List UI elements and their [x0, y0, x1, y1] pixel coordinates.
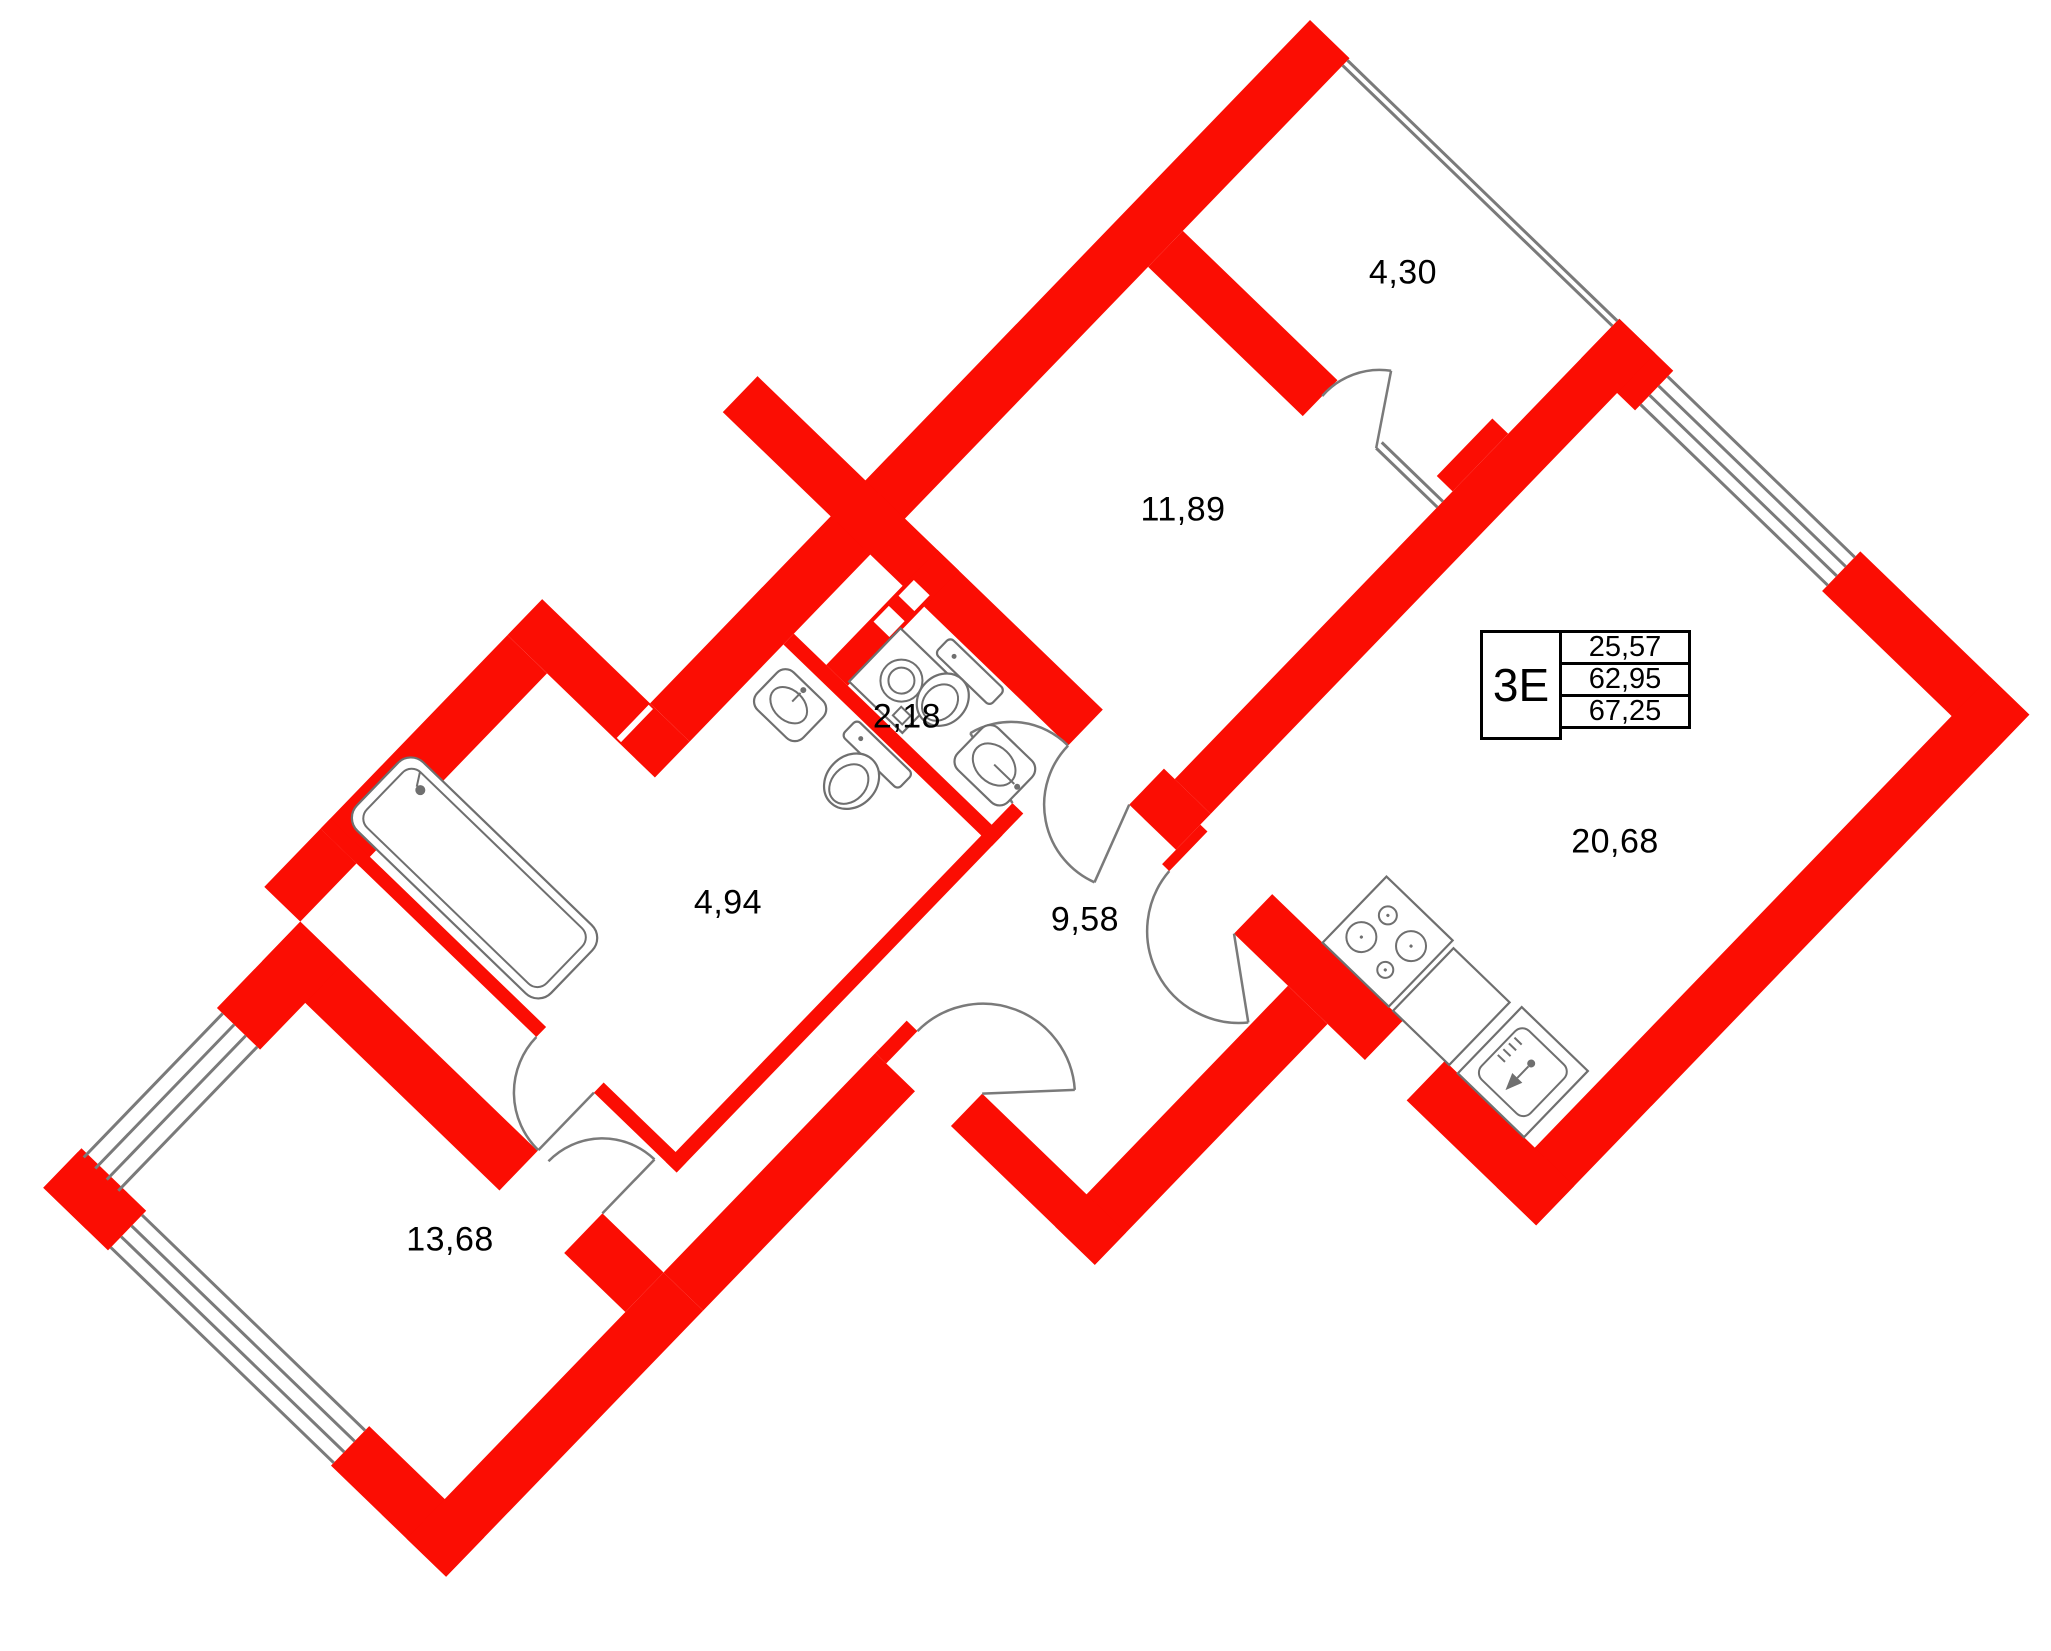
unit-area: 62,95	[1562, 662, 1691, 697]
room-label-hallway: 9,58	[1051, 901, 1119, 940]
window-left	[84, 1014, 257, 1191]
room-label-living-kitchen: 20,68	[1571, 823, 1659, 862]
sink-icon	[950, 720, 1041, 810]
unit-type-cell: 3Е	[1480, 630, 1562, 740]
rotated-plan	[7, 0, 2029, 1651]
exterior-walls	[7, 0, 2029, 1651]
room-label-bedroom-bottom: 13,68	[406, 1221, 494, 1260]
unit-areas: 25,57 62,95 67,25	[1562, 630, 1691, 740]
unit-living-area: 25,57	[1562, 630, 1691, 665]
floor-plan-drawing	[0, 0, 2051, 1651]
floor-plan-page: 4,30 11,89 2,18 4,94 9,58 20,68 13,68 3Е…	[0, 0, 2051, 1651]
room-label-wc: 2,18	[873, 698, 941, 737]
room-label-bedroom-top: 11,89	[1140, 491, 1225, 530]
unit-info-table: 3Е 25,57 62,95 67,25	[1480, 630, 1691, 740]
unit-total-area: 67,25	[1562, 694, 1691, 729]
room-label-bathroom: 4,94	[694, 884, 762, 923]
window-top	[1641, 377, 1855, 586]
window-bottom	[111, 1215, 365, 1463]
room-label-balcony: 4,30	[1369, 254, 1437, 293]
